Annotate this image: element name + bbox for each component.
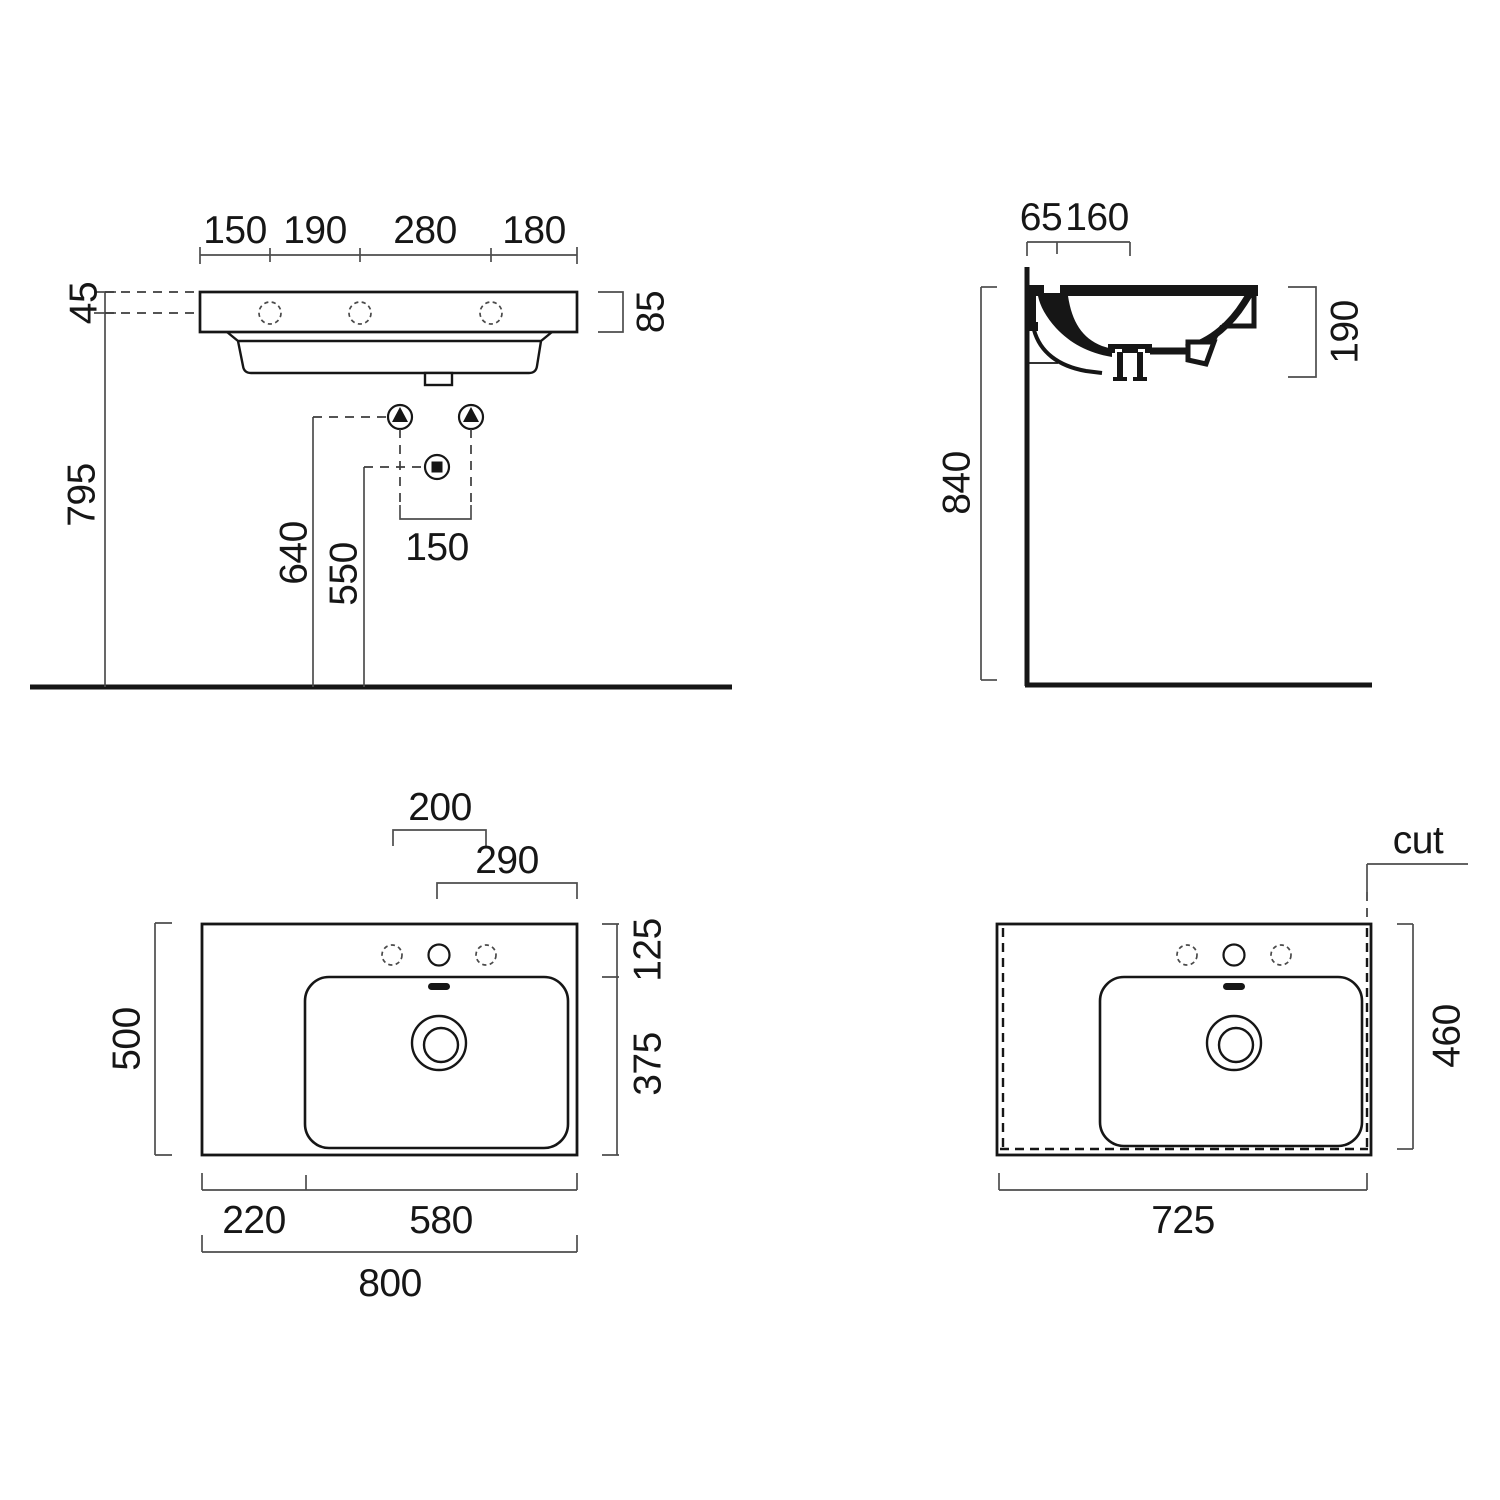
dim-label-640: 640 — [273, 521, 316, 585]
fixing-points — [388, 405, 483, 505]
dim-label-45: 45 — [63, 282, 106, 324]
dim-150-bracket — [400, 505, 471, 519]
side-top-dimension-chain: 65 160 — [1020, 196, 1130, 256]
tap-deck-section — [1028, 285, 1258, 296]
front-left-dimensions: 45 795 — [61, 282, 259, 687]
dim-label-800: 800 — [358, 1262, 422, 1305]
dim-label-580: 580 — [409, 1199, 473, 1242]
dim-label-190: 190 — [1324, 300, 1367, 364]
dim-label-85: 85 — [630, 291, 673, 333]
front-top-dimension-chain: 150 190 280 180 — [200, 209, 577, 264]
dim-label-220: 220 — [222, 1199, 286, 1242]
drain-point-square — [432, 462, 443, 473]
dim-label-150: 150 — [203, 209, 267, 252]
dim-290-bracket — [437, 883, 577, 899]
overflow-slot-icon — [428, 983, 450, 990]
drain-inner-circle — [424, 1028, 458, 1062]
rim-height-dimension: 85 — [598, 291, 673, 333]
drain-inner-circle — [1219, 1028, 1253, 1062]
side-section-view: 65 160 840 190 — [936, 196, 1373, 686]
basin-rim-front — [200, 292, 577, 332]
dim-200-bracket — [393, 830, 486, 846]
washbasin-dimension-drawing: 150 190 280 180 45 795 85 — [0, 0, 1500, 1500]
dim-85-bracket — [598, 292, 623, 332]
dim-label-550: 550 — [323, 542, 366, 606]
plan-view: 200 290 125 375 500 220 580 800 — [106, 786, 670, 1305]
dim-label-180: 180 — [502, 209, 566, 252]
tap-hole-slot — [1044, 283, 1060, 293]
dim-label-290: 290 — [475, 839, 539, 882]
side-height-dimension: 840 — [936, 287, 998, 680]
cut-annotation: cut — [1367, 819, 1468, 924]
section-depth-dimension: 190 — [1288, 287, 1367, 377]
basin-front-outline — [200, 292, 577, 385]
drain-flange-section — [1108, 344, 1152, 353]
overflow-channel-section — [1188, 342, 1214, 364]
drain-body-walls — [1120, 352, 1140, 379]
dim-label-375: 375 — [627, 1032, 670, 1096]
fixing-spacing-dimension: 150 — [400, 505, 471, 569]
basin-bowl-underside — [227, 332, 552, 373]
basin-section-outline — [1026, 283, 1258, 379]
height-dimensions: 640 550 — [273, 417, 426, 687]
dim-label-795: 795 — [61, 463, 104, 527]
dim-label-125: 125 — [627, 918, 670, 982]
dim-label-280: 280 — [393, 209, 457, 252]
dim-label-190: 190 — [283, 209, 347, 252]
faucet-hole-center — [1224, 945, 1245, 966]
dim-190-bracket — [1288, 287, 1316, 377]
drain-stub-front — [425, 373, 452, 385]
wall-bracket-section — [1029, 296, 1036, 323]
dim-label-65: 65 — [1020, 196, 1062, 239]
dim-label-725: 725 — [1151, 1199, 1215, 1242]
overflow-slot-icon — [1223, 983, 1245, 990]
bowl-back-wall-section — [1038, 296, 1112, 357]
dim-label-200: 200 — [408, 786, 472, 829]
dim-label-500: 500 — [106, 1007, 149, 1071]
front-elevation-view: 150 190 280 180 45 795 85 — [30, 209, 732, 687]
dim-label-460: 460 — [1426, 1004, 1469, 1068]
cut-label: cut — [1393, 819, 1444, 862]
wall-bracket-foot — [1026, 322, 1038, 331]
dim-label-150-spacing: 150 — [405, 526, 469, 569]
dim-label-160: 160 — [1065, 196, 1129, 239]
plan-cut-view: cut 460 725 — [997, 819, 1469, 1242]
faucet-hole-center — [429, 945, 450, 966]
dim-label-840: 840 — [936, 451, 979, 515]
technical-drawing-sheet: 150 190 280 180 45 795 85 — [0, 0, 1500, 1500]
